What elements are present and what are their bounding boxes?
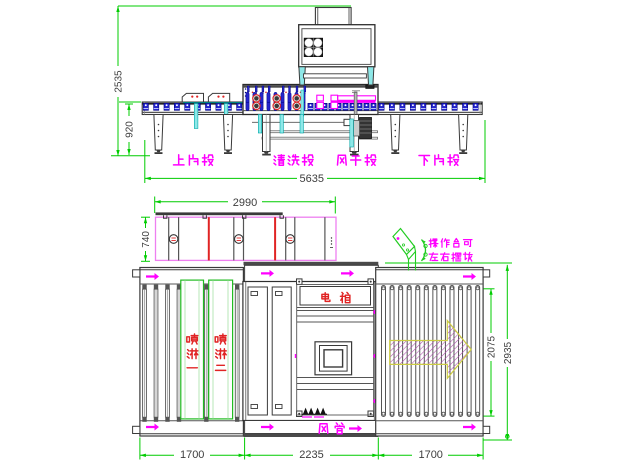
svg-text:2075: 2075 (487, 335, 498, 358)
svg-text:920: 920 (125, 121, 136, 138)
svg-text:2935: 2935 (503, 341, 514, 364)
svg-text:5635: 5635 (300, 173, 324, 185)
svg-text:1700: 1700 (180, 449, 204, 461)
svg-text:2235: 2235 (299, 449, 323, 461)
svg-text:2535: 2535 (114, 70, 125, 93)
svg-text:740: 740 (141, 231, 152, 248)
svg-text:2990: 2990 (233, 197, 257, 209)
svg-text:1700: 1700 (418, 449, 442, 461)
